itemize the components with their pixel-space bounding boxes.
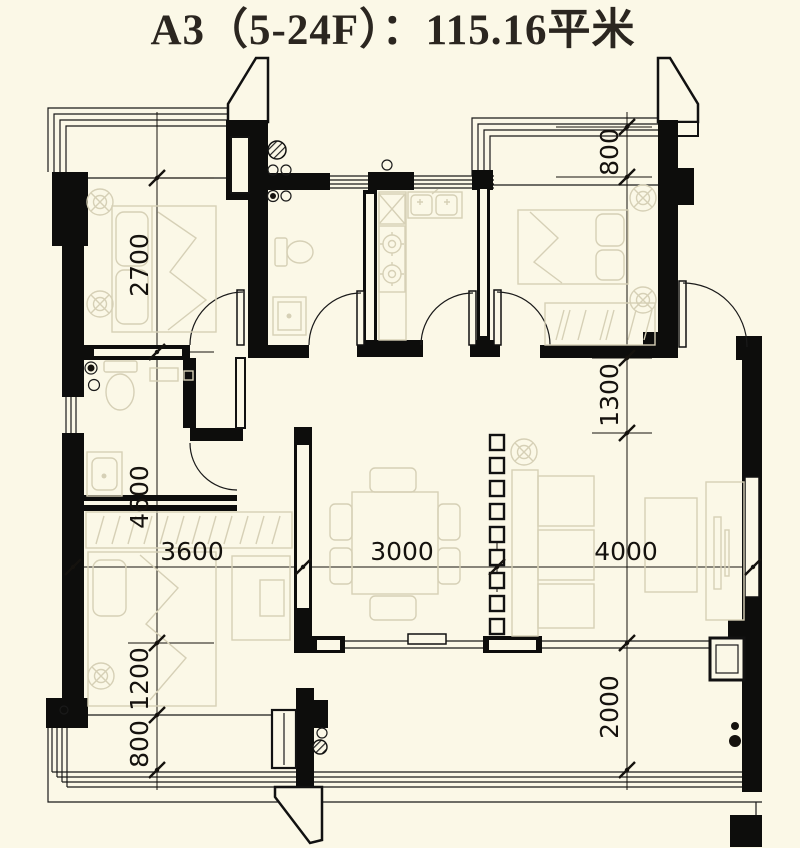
furniture-bedroom-top-right	[518, 185, 656, 345]
balcony-sliding-door	[312, 634, 542, 653]
door-entry	[679, 281, 686, 347]
dim-left-800: 800	[125, 720, 154, 768]
door-kitchen	[469, 291, 476, 345]
flue-duct-balcony-icon	[313, 740, 327, 754]
dim-left-2700: 2700	[125, 233, 154, 297]
dim-bottom-3000: 3000	[370, 537, 434, 566]
dim-right-2000: 2000	[595, 675, 624, 739]
dim-right-800: 800	[595, 128, 624, 176]
door-bathroom-1	[357, 291, 364, 345]
door-bathroom-2	[190, 443, 237, 490]
bay-window-top-left	[48, 108, 233, 178]
living-room-window	[745, 477, 759, 597]
duct-and-pipe-symbols	[60, 141, 741, 754]
dim-left-4600: 4600	[125, 465, 154, 529]
floor-plan-svg: A3（5-24F）：115.16平米	[0, 0, 800, 848]
door-bedroom-tl	[237, 290, 244, 345]
floor-plan-page: A3（5-24F）：115.16平米	[0, 0, 800, 848]
ac-platform-top-left	[228, 58, 268, 122]
bathroom2-window	[66, 397, 76, 433]
ac-platform-top-right	[658, 58, 698, 122]
dimension-lines	[62, 112, 757, 790]
dashed-feature-wall	[490, 435, 504, 634]
plan-title: A3（5-24F）：115.16平米	[150, 6, 635, 54]
dim-right-1300: 1300	[595, 363, 624, 427]
ac-platform-bottom	[275, 787, 322, 843]
ac-shelf-living	[710, 638, 744, 680]
door-bedroom-tr	[494, 290, 501, 345]
furniture-kitchen	[379, 189, 462, 340]
dim-bottom-4000: 4000	[594, 537, 658, 566]
furniture-bathroom-1	[273, 238, 313, 335]
dim-left-1200: 1200	[125, 647, 154, 711]
dim-bottom-3600: 3600	[160, 537, 224, 566]
flue-duct-icon	[268, 141, 286, 159]
balcony-window-band-bottom	[48, 715, 762, 845]
